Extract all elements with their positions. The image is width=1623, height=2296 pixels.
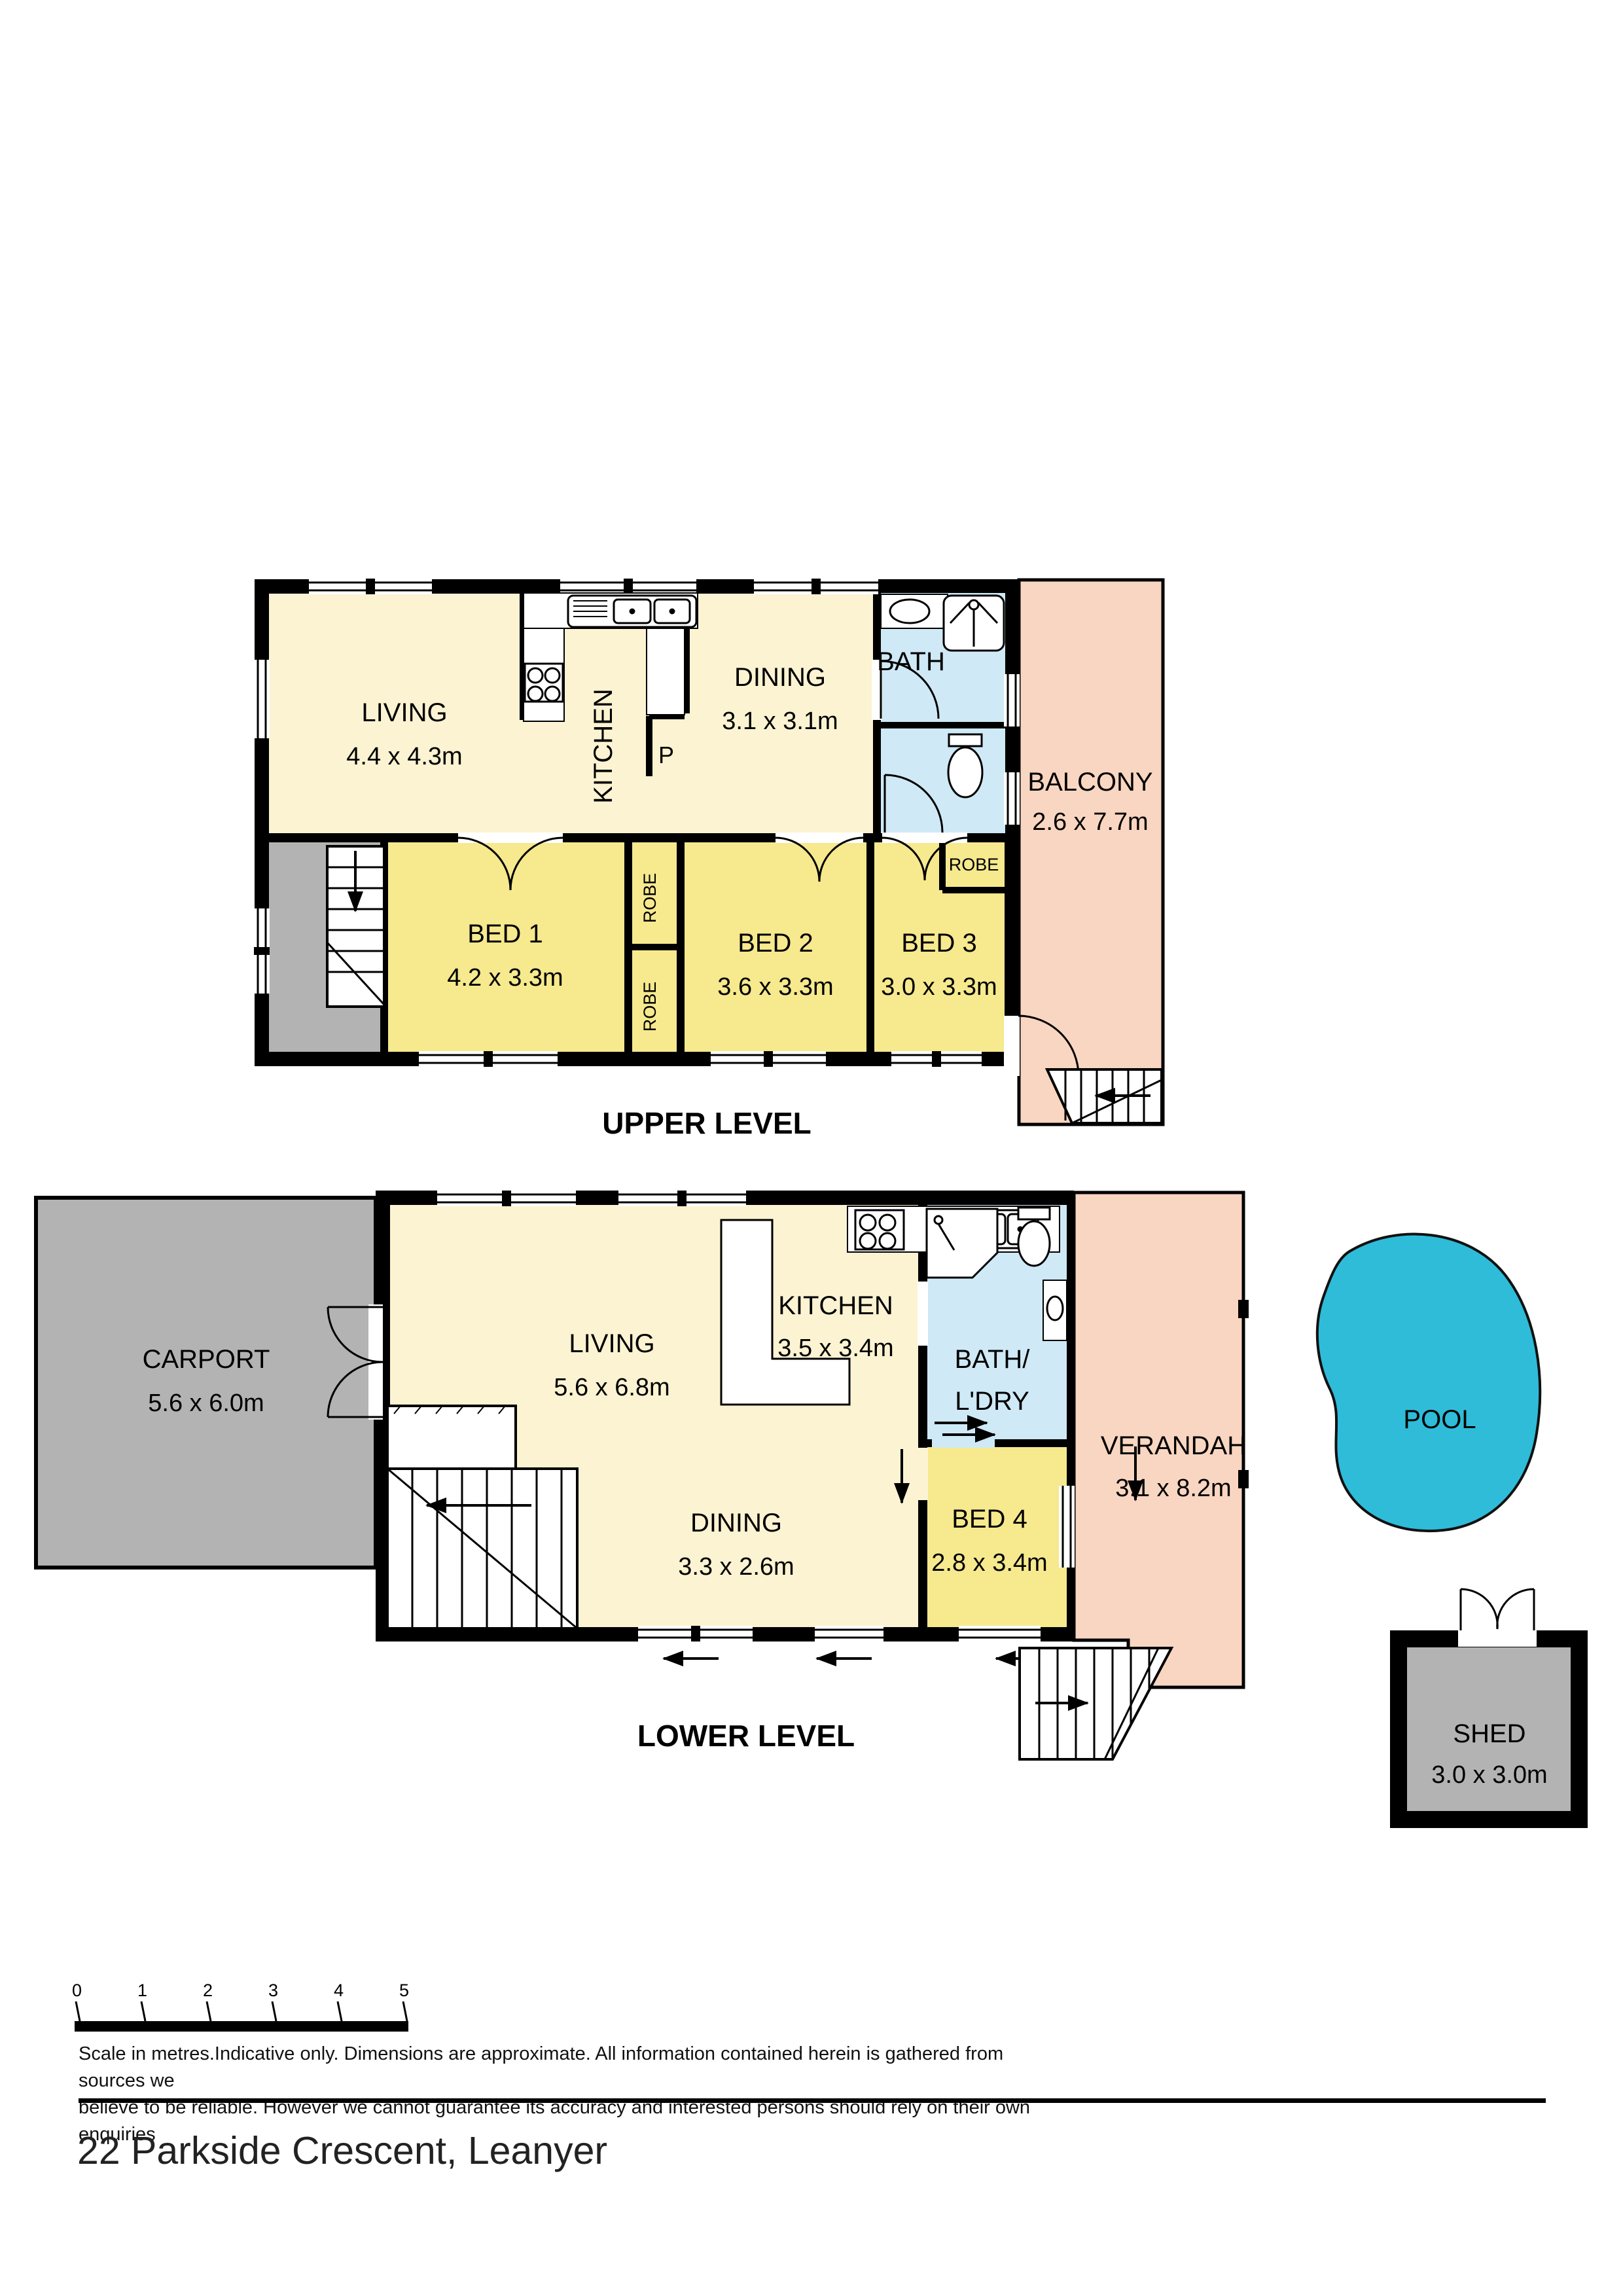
verandah-pier (1238, 1300, 1249, 1318)
room-label: LIVING (361, 698, 447, 727)
room-label: BATH/ (955, 1345, 1031, 1374)
bath-slider-gap (932, 1439, 995, 1448)
toilet-icon-lower (1018, 1208, 1050, 1266)
room-balcony-upper (1019, 580, 1163, 1124)
shed-door-gap (1458, 1627, 1537, 1647)
floorplan-canvas: LIVING 4.4 x 4.3m KITCHEN P DINING 3.1 x… (0, 0, 1623, 2296)
room-bed4 (923, 1447, 1067, 1627)
shower-icon-upper (944, 596, 1004, 651)
room-dims: 4.2 x 3.3m (447, 964, 563, 992)
verandah-pier (1238, 1470, 1249, 1488)
room-dims: 3.6 x 3.3m (717, 973, 833, 1001)
scale-tick: 1 (137, 1981, 147, 2000)
room-label: DINING (690, 1509, 782, 1537)
lower-level-title: LOWER LEVEL (637, 1719, 855, 1753)
room-label: DINING (734, 663, 826, 692)
room-label: BALCONY (1027, 768, 1152, 797)
room-label: BED 1 (467, 920, 543, 948)
stove-icon-upper (525, 664, 563, 702)
room-dims: 5.6 x 6.0m (148, 1390, 264, 1417)
pantry-label: P (658, 742, 674, 768)
room-label: BED 4 (952, 1505, 1027, 1534)
toilet-icon-upper (948, 734, 982, 797)
disclaimer-line-1: Scale in metres.Indicative only. Dimensi… (79, 2041, 1073, 2094)
vanity-icon-lower (1043, 1280, 1067, 1340)
room-dims: 4.4 x 4.3m (346, 743, 462, 770)
scale-bar: 0 1 2 3 4 5 (72, 1981, 409, 2032)
room-dims: 5.6 x 6.8m (554, 1374, 669, 1401)
stair-icon-upper-internal (327, 846, 384, 1007)
page-title: 22 Parkside Crescent, Leanyer (77, 2128, 607, 2173)
scale-tick: 5 (399, 1981, 409, 2000)
room-dims: 3.1 x 8.2m (1115, 1475, 1231, 1502)
room-label: BED 3 (901, 929, 977, 958)
sink-icon-upper (568, 596, 696, 627)
divider-rule (79, 2098, 1546, 2103)
floorplan-page: LIVING 4.4 x 4.3m KITCHEN P DINING 3.1 x… (0, 0, 1623, 2296)
robe-label: ROBE (640, 982, 660, 1032)
room-label: POOL (1403, 1405, 1476, 1434)
lower-level-plan: CARPORT 5.6 x 6.0m LIVING 5.6 x 6.8m KIT… (36, 1191, 1579, 1820)
shed-doors (1461, 1589, 1534, 1630)
room-dims: 3.0 x 3.3m (881, 973, 997, 1001)
room-label: KITCHEN (778, 1291, 893, 1320)
room-label: SHED (1453, 1719, 1525, 1748)
room-dims: 3.1 x 3.1m (722, 708, 838, 735)
room-dims: 3.0 x 3.0m (1431, 1761, 1547, 1789)
robe-label: ROBE (949, 855, 999, 874)
robe-label: ROBE (640, 873, 660, 924)
room-dims: 3.5 x 3.4m (777, 1335, 893, 1362)
room-label: L'DRY (955, 1387, 1029, 1416)
room-carport (36, 1198, 376, 1568)
scale-tick: 0 (72, 1981, 82, 2000)
upper-level-title: UPPER LEVEL (602, 1106, 811, 1140)
stair-icon-lower-external (1020, 1648, 1171, 1759)
bath-door-gap (918, 1282, 928, 1346)
vanity-icon-upper (881, 594, 948, 628)
pool-shape (1317, 1234, 1540, 1532)
room-dims: 2.8 x 3.4m (931, 1549, 1047, 1577)
room-label: CARPORT (143, 1345, 270, 1374)
room-label: LIVING (569, 1329, 654, 1358)
room-label: VERANDAH (1101, 1431, 1246, 1460)
scale-tick: 2 (203, 1981, 213, 2000)
upper-level-plan: LIVING 4.4 x 4.3m KITCHEN P DINING 3.1 x… (254, 579, 1163, 1140)
bed4-door-gap (918, 1448, 928, 1500)
stove-icon-lower (855, 1210, 904, 1249)
room-label: KITCHEN (589, 689, 618, 804)
room-label: BED 2 (738, 929, 813, 958)
room-dims: 3.3 x 2.6m (678, 1553, 794, 1581)
room-label: BATH (877, 647, 945, 676)
room-dims: 2.6 x 7.7m (1032, 808, 1148, 836)
scale-tick: 3 (268, 1981, 278, 2000)
scale-tick: 4 (334, 1981, 344, 2000)
